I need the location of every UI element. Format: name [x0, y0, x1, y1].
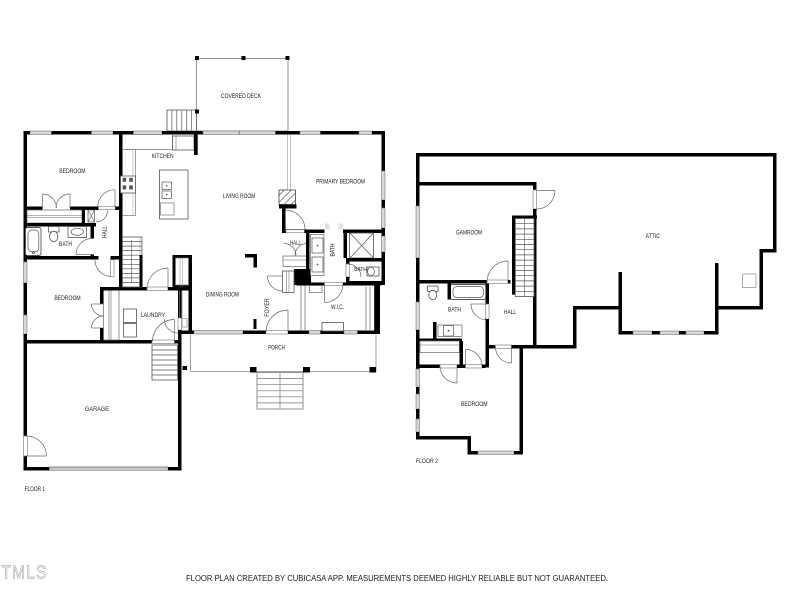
svg-text:LIVING ROOM: LIVING ROOM	[223, 193, 256, 200]
svg-text:TMLS: TMLS	[2, 562, 48, 583]
svg-text:LAUNDRY: LAUNDRY	[141, 312, 165, 319]
svg-text:PORCH: PORCH	[268, 345, 285, 352]
svg-text:GARAGE: GARAGE	[85, 406, 109, 413]
svg-text:DINING ROOM: DINING ROOM	[206, 292, 239, 299]
svg-text:BATH: BATH	[354, 267, 367, 273]
svg-text:HALL: HALL	[504, 309, 516, 316]
svg-text:KITCHEN: KITCHEN	[152, 153, 174, 160]
svg-text:HALL: HALL	[101, 226, 108, 238]
svg-text:ATTIC: ATTIC	[646, 233, 661, 240]
svg-text:FOYER: FOYER	[264, 298, 271, 317]
svg-text:BATH: BATH	[448, 307, 461, 314]
svg-text:BEDROOM: BEDROOM	[54, 295, 80, 302]
svg-text:W.I.C.: W.I.C.	[331, 304, 344, 311]
svg-text:BEDROOM: BEDROOM	[461, 401, 488, 408]
svg-text:BATH: BATH	[59, 241, 72, 248]
svg-text:BEDROOM: BEDROOM	[59, 168, 85, 175]
svg-text:FLOOR 2: FLOOR 2	[416, 458, 438, 465]
svg-text:FLOOR PLAN CREATED BY CUBICASA: FLOOR PLAN CREATED BY CUBICASA APP. MEAS…	[186, 574, 608, 583]
svg-text:BATH: BATH	[330, 244, 337, 257]
svg-text:PRIMARY BEDROOM: PRIMARY BEDROOM	[316, 179, 365, 186]
svg-text:GAMROOM: GAMROOM	[456, 230, 482, 237]
svg-text:COVERED DECK: COVERED DECK	[221, 93, 262, 100]
svg-text:FLOOR 1: FLOOR 1	[25, 486, 46, 493]
